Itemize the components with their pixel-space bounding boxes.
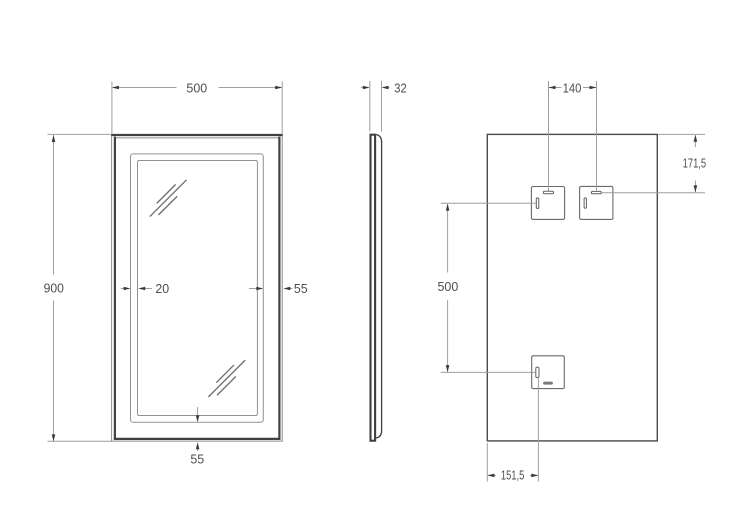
svg-text:151,5: 151,5 xyxy=(501,468,525,483)
svg-text:500: 500 xyxy=(438,279,459,294)
svg-text:20: 20 xyxy=(155,281,169,296)
svg-text:32: 32 xyxy=(394,80,406,95)
svg-text:55: 55 xyxy=(294,281,308,296)
svg-text:171,5: 171,5 xyxy=(683,156,707,171)
svg-text:55: 55 xyxy=(190,452,204,467)
svg-text:500: 500 xyxy=(186,80,207,95)
svg-text:140: 140 xyxy=(563,80,582,95)
svg-text:900: 900 xyxy=(44,280,64,295)
